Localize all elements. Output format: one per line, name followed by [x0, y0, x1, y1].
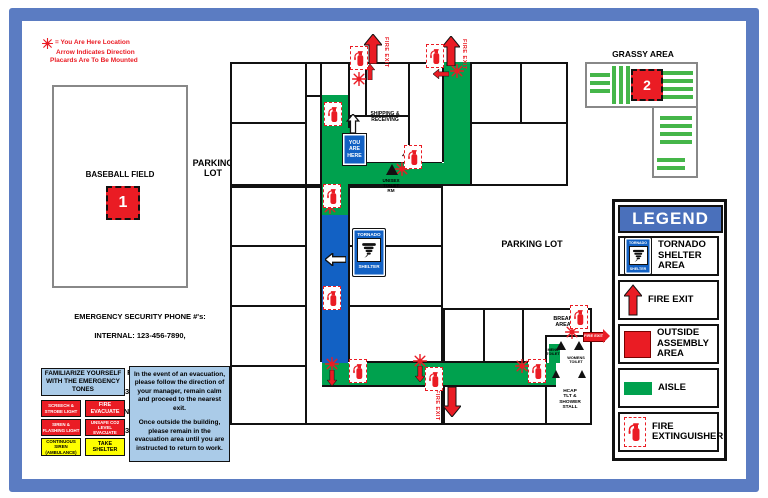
- fire-extinguisher-icon: [350, 46, 368, 70]
- toilet-symbol: [386, 164, 398, 175]
- fire-extinguisher-icon: [349, 359, 367, 383]
- direction-arrow-left-icon: [433, 69, 449, 79]
- fire-extinguisher-icon: [528, 359, 546, 383]
- you-are-here-sign: YOU ARE HERE: [342, 133, 367, 166]
- phones-title: EMERGENCY SECURITY PHONE #'s:: [50, 312, 230, 322]
- you-are-here-note: = You Are Here Location Arrow Indicates …: [42, 38, 172, 66]
- starburst-icon: [325, 357, 339, 371]
- direction-arrow-down-icon: [415, 366, 425, 382]
- legend-row-aisle: AISLE: [618, 368, 719, 408]
- fire-extinguisher-icon: [323, 184, 341, 208]
- grassy-area-label: GRASSY AREA: [593, 50, 693, 60]
- toilet-symbol: [578, 370, 586, 378]
- toilet-symbol: [556, 341, 566, 350]
- womens-toilet-label: WOMENS TOILET: [563, 356, 589, 365]
- fire-extinguisher-icon: [570, 305, 588, 329]
- fire-exit-label: FIRE EXIT: [434, 390, 440, 421]
- toilet-symbol: [552, 370, 560, 378]
- parking-lot-right-label: PARKING LOT: [487, 239, 577, 249]
- tornado-shelter-sign: TORNADO SHELTER: [352, 228, 386, 277]
- starburst-icon: [515, 359, 529, 373]
- starburst-icon: [42, 38, 53, 49]
- legend-row-assembly: OUTSIDE ASSEMBLY AREA: [618, 324, 719, 364]
- legend-label: FIRE EXTINGUISHER: [652, 422, 723, 443]
- legend-row-extinguisher: FIRE EXTINGUISHER: [618, 412, 719, 452]
- fire-extinguisher-icon: [404, 145, 422, 169]
- legend-label: TORNADO SHELTER AREA: [658, 240, 717, 271]
- legend-label: OUTSIDE ASSEMBLY AREA: [657, 328, 717, 359]
- legend-title: LEGEND: [618, 205, 723, 233]
- legend-label: FIRE EXIT: [648, 295, 693, 305]
- tornado-icon: [357, 238, 381, 262]
- tornado-sign-top-label: TORNADO: [353, 232, 385, 237]
- hcap-toilet-label: HCAP TLT & SHOWER STALL: [548, 389, 592, 410]
- note-line-3: Placards Are To Be Mounted: [42, 57, 172, 65]
- note-line-1: = You Are Here Location: [55, 39, 130, 47]
- evacuation-map-page: = You Are Here Location Arrow Indicates …: [0, 0, 768, 498]
- tone-action-fire: FIRE EVACUATE: [85, 400, 125, 417]
- shelter-direction-arrow-icon: [325, 253, 346, 266]
- fire-extinguisher-icon: [426, 44, 444, 68]
- aisle-swatch: [624, 382, 652, 395]
- fire-exit-label: FIRE EXIT: [584, 333, 603, 338]
- phones-internal: INTERNAL: 123-456-7890,: [50, 331, 230, 341]
- tone-action-shelter: TAKE SHELTER: [85, 438, 125, 456]
- assembly-area-marker-1: 1: [106, 186, 140, 220]
- tornado-sign-bottom-label: SHELTER: [353, 264, 385, 269]
- unisex-toilet-label: UNISEX TOILET RM: [374, 178, 408, 193]
- assembly-area-marker-2: 2: [631, 69, 663, 101]
- outside-assembly-swatch: [624, 331, 651, 358]
- tone-signal-shelter: CONTINUOUS SIREN (AMBULANCE): [41, 438, 81, 456]
- fire-exit-label: FIRE EXIT: [383, 37, 389, 68]
- fire-extinguisher-icon: [425, 367, 443, 391]
- aisle-east-vertical: [444, 62, 470, 184]
- direction-arrow-down-icon: [327, 370, 337, 386]
- legend-label: AISLE: [658, 383, 686, 393]
- legend-row-tornado: TORNADO SHELTER TORNADO SHELTER AREA: [618, 236, 719, 276]
- baseball-field-label: BASEBALL FIELD: [60, 171, 180, 180]
- you-are-here-arrow-icon: [346, 114, 360, 133]
- fire-extinguisher-icon: [624, 417, 646, 447]
- tornado-shelter-legend-sign: TORNADO SHELTER: [624, 237, 652, 275]
- tone-signal-co2: SIREN & FLASHING LIGHT: [41, 419, 81, 436]
- fire-exit-arrow-right: FIRE EXIT: [583, 329, 610, 343]
- fire-exit-arrow-up-icon: [624, 284, 642, 316]
- evacuation-instructions: In the event of an evacuation, please fo…: [129, 366, 230, 462]
- legend-panel: LEGEND TORNADO SHELTER TORNADO SHELTER A…: [612, 199, 727, 461]
- legend-row-fire-exit: FIRE EXIT: [618, 280, 719, 320]
- starburst-icon: [352, 72, 366, 86]
- fire-exit-label: FIRE EXIT: [461, 39, 467, 70]
- evacuation-paragraph-2: Once outside the building, please remain…: [133, 419, 226, 453]
- evacuation-paragraph-1: In the event of an evacuation, please fo…: [133, 371, 226, 413]
- tornado-icon: [629, 246, 648, 265]
- fire-extinguisher-icon: [323, 286, 341, 310]
- emergency-tones-header: FAMILIARIZE YOURSELF WITH THE EMERGENCY …: [41, 368, 125, 396]
- shipping-receiving-label: SHIPPING & RECEIVING: [362, 112, 408, 123]
- tone-signal-fire: SCREECH & STROBE LIGHT: [41, 400, 81, 417]
- tone-action-co2: UNSAFE CO2 LEVEL EVACUATE: [85, 419, 125, 436]
- fire-exit-arrow-down-icon: [443, 387, 461, 417]
- fire-extinguisher-icon: [324, 102, 342, 126]
- note-line-2: Arrow Indicates Direction: [42, 49, 172, 57]
- fire-exit-arrow-up-icon: [442, 36, 460, 66]
